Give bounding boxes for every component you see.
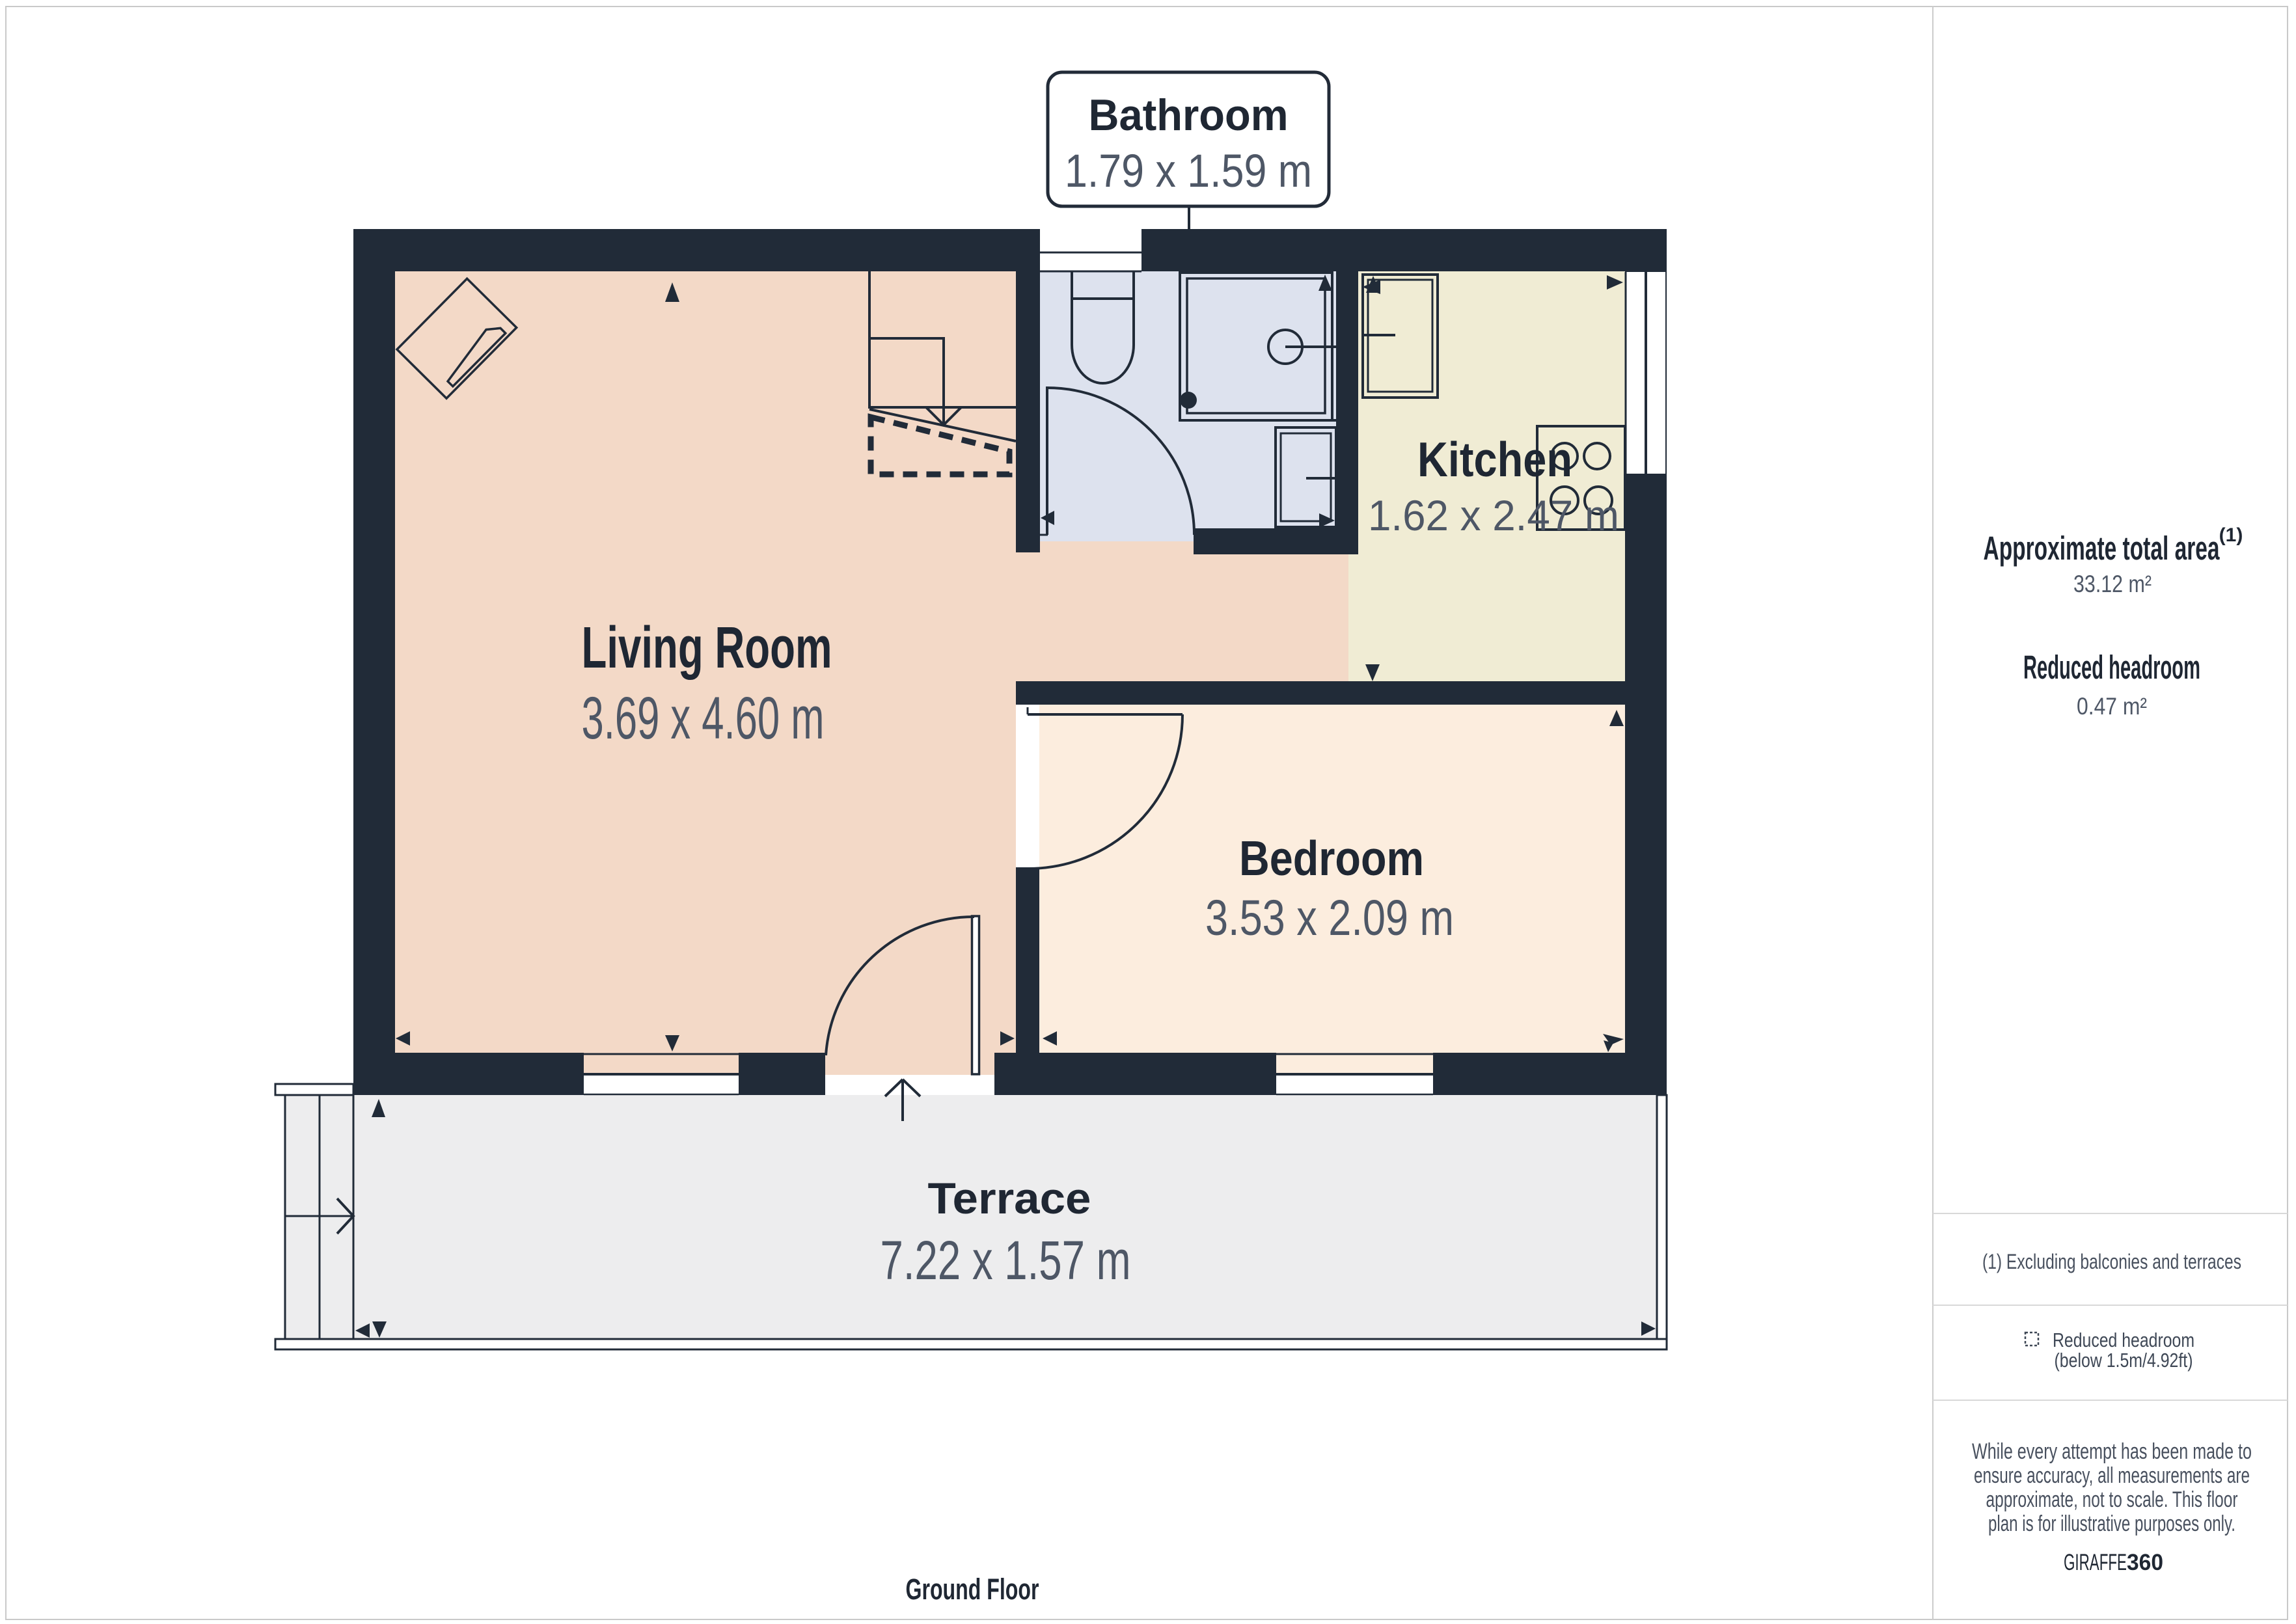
svg-text:(1): (1) xyxy=(2219,524,2243,546)
svg-text:GIRAFFE: GIRAFFE xyxy=(2064,1550,2127,1575)
svg-text:Bathroom: Bathroom xyxy=(1089,90,1289,140)
svg-text:While every attempt has been m: While every attempt has been made to xyxy=(1972,1439,2252,1464)
svg-text:(1) Excluding balconies and te: (1) Excluding balconies and terraces xyxy=(1982,1250,2241,1273)
svg-text:ensure accuracy, all measureme: ensure accuracy, all measurements are xyxy=(1974,1463,2250,1488)
svg-text:Terrace: Terrace xyxy=(928,1174,1091,1223)
svg-text:7.22 x 1.57 m: 7.22 x 1.57 m xyxy=(881,1230,1131,1291)
svg-text:Bedroom: Bedroom xyxy=(1239,831,1424,886)
svg-text:approximate, not to scale. Thi: approximate, not to scale. This floor xyxy=(1986,1487,2238,1512)
svg-text:1.62 x 2.47 m: 1.62 x 2.47 m xyxy=(1368,491,1619,539)
svg-text:Living Room: Living Room xyxy=(582,616,832,681)
svg-text:Reduced headroom: Reduced headroom xyxy=(2053,1329,2194,1351)
svg-text:3.53 x 2.09 m: 3.53 x 2.09 m xyxy=(1205,890,1454,946)
svg-text:1.79 x 1.59 m: 1.79 x 1.59 m xyxy=(1065,146,1312,197)
svg-text:360: 360 xyxy=(2127,1550,2163,1575)
svg-text:0.47 m²: 0.47 m² xyxy=(2077,693,2147,720)
svg-text:Reduced headroom: Reduced headroom xyxy=(2023,649,2200,686)
svg-text:Ground Floor: Ground Floor xyxy=(906,1573,1039,1606)
svg-text:Approximate total area: Approximate total area xyxy=(1984,530,2220,567)
svg-text:plan is for illustrative purpo: plan is for illustrative purposes only. xyxy=(1988,1511,2235,1536)
svg-text:3.69 x 4.60 m: 3.69 x 4.60 m xyxy=(582,685,825,751)
svg-text:Kitchen: Kitchen xyxy=(1417,432,1572,487)
svg-text:(below 1.5m/4.92ft): (below 1.5m/4.92ft) xyxy=(2055,1349,2193,1372)
svg-text:33.12 m²: 33.12 m² xyxy=(2073,571,2152,597)
